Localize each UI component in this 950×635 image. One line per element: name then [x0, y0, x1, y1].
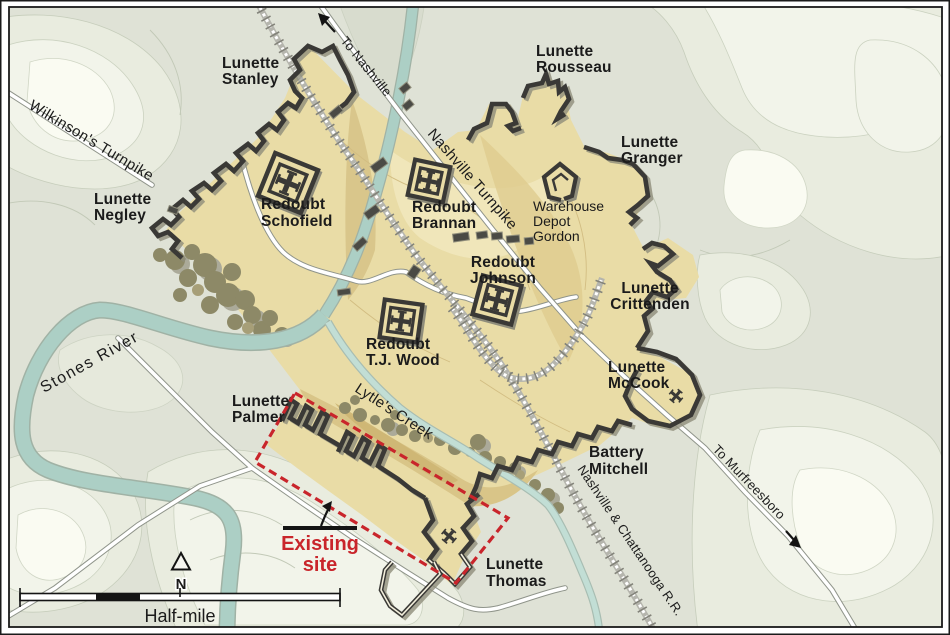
north-arrow-letter: N: [176, 576, 187, 593]
lunette-granger-label-2: Granger: [621, 150, 683, 167]
scale-bar-segment: [96, 594, 140, 601]
lunette-negley-label-2: Negley: [94, 207, 146, 224]
lunette-crittenden-label-1: Lunette: [621, 280, 679, 297]
lunette-stanley-label-1: Lunette: [222, 55, 280, 72]
lunette-stanley-label-2: Stanley: [222, 71, 279, 88]
battery-mitchell-label-2: Mitchell: [589, 461, 648, 478]
warehouse-depot-gordon-label-2: Depot: [533, 213, 570, 229]
lunette-palmer-label-1: Lunette: [232, 393, 290, 410]
fortress-rosecrans-map: Existing site Lunette Stanley Lunette Ne…: [0, 0, 950, 635]
lunette-granger-label-1: Lunette: [621, 134, 679, 151]
redoubt-johnson-label-2: Johnson: [470, 270, 536, 287]
lunette-thomas-label-2: Thomas: [486, 573, 547, 590]
lunette-rousseau-label-2: Rousseau: [536, 59, 612, 76]
warehouse-depot-gordon-label-3: Gordon: [533, 228, 580, 244]
existing-site-label-line2: site: [303, 554, 337, 576]
lunette-crittenden-label-2: Crittenden: [610, 296, 690, 313]
lunette-thomas-label-1: Lunette: [486, 556, 544, 573]
lunette-rousseau-label-1: Lunette: [536, 43, 594, 60]
lunette-negley-label-1: Lunette: [94, 191, 152, 208]
redoubt-brannan-label-1: Redoubt: [412, 199, 476, 216]
scale-bar-label: Half-mile: [144, 606, 215, 626]
redoubt-schofield-label-1: Redoubt: [261, 196, 325, 213]
redoubt-tj-wood-label-2: T.J. Wood: [366, 352, 440, 369]
lunette-palmer-label-2: Palmer: [232, 409, 285, 426]
lunette-mccook-label-1: Lunette: [608, 359, 666, 376]
redoubt-schofield-label-2: Schofield: [261, 213, 333, 230]
lunette-mccook-label-2: McCook: [608, 375, 670, 392]
battery-mitchell-label-1: Battery: [589, 444, 644, 461]
redoubt-tj-wood-label-1: Redoubt: [366, 336, 430, 353]
warehouse-depot-gordon-label-1: Warehouse: [533, 198, 604, 214]
redoubt-brannan-label-2: Brannan: [412, 215, 476, 232]
existing-site-label-line1: Existing: [281, 533, 359, 555]
map-canvas: Existing site Lunette Stanley Lunette Ne…: [0, 0, 950, 635]
redoubt-johnson-label-1: Redoubt: [471, 254, 535, 271]
